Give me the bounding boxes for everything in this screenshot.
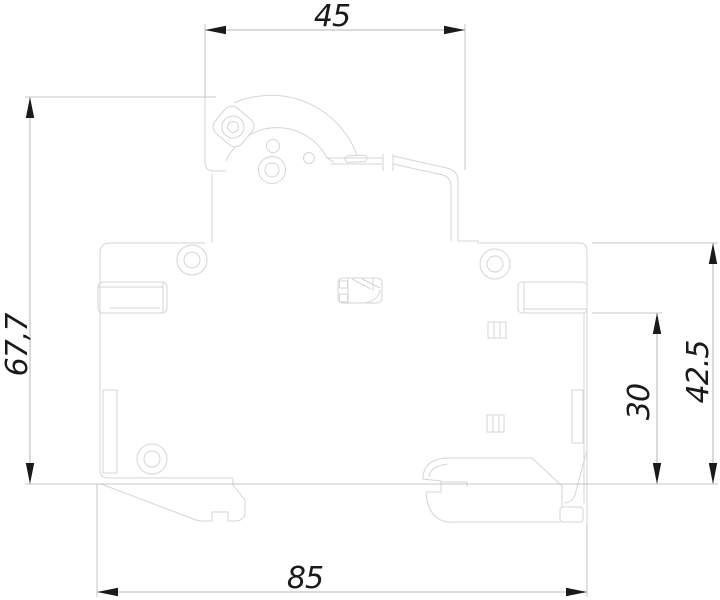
rivet-top-right-inner <box>487 256 503 272</box>
arrow-down-icon <box>709 463 717 484</box>
housing-top-tab <box>345 155 367 163</box>
vent-upper-lines <box>494 322 500 338</box>
arrow-right-icon <box>444 26 465 34</box>
arrow-down-icon <box>26 463 34 484</box>
dim-label-bottom-width: 85 <box>287 561 323 596</box>
arrow-up-icon <box>26 97 34 118</box>
din-fixed-jaw <box>101 479 245 521</box>
pivot-rivet-inner <box>265 163 279 177</box>
slot-left <box>103 390 117 473</box>
drawing-canvas: 45 67,7 42.5 30 85 <box>0 0 720 600</box>
terminal-right-block <box>518 282 587 313</box>
dim-label-right-inner-height: 30 <box>622 384 657 420</box>
din-clip-cap-inner <box>429 464 448 477</box>
body-top-step <box>458 241 478 243</box>
din-rail-mount <box>101 447 587 524</box>
dimension-right-height: 42.5 <box>592 243 718 484</box>
lever-link-pin <box>267 140 280 153</box>
din-clip-slot <box>441 482 467 487</box>
dimension-bottom-width: 85 <box>97 484 587 597</box>
latch-detail-diag-b <box>352 279 371 289</box>
latch-detail-frame <box>338 278 382 303</box>
vent-upper <box>488 322 506 338</box>
vent-lower-lines <box>493 415 499 432</box>
din-clip-cap <box>423 458 450 522</box>
arrow-up-icon <box>709 243 717 264</box>
slot-right <box>572 390 583 443</box>
dim-label-top-width: 45 <box>314 0 350 34</box>
toggle-lever <box>209 95 357 183</box>
vents-and-slots <box>103 322 583 473</box>
breaker-dimension-drawing: 45 67,7 42.5 30 85 <box>0 0 720 600</box>
housing-top-slope-outer <box>393 156 458 241</box>
arrow-right-icon <box>566 588 587 596</box>
dimension-top-width: 45 <box>205 0 465 170</box>
arrow-left-icon <box>205 26 226 34</box>
breaker-body <box>98 95 587 524</box>
dim-label-left-height: 67,7 <box>0 313 35 377</box>
rivet-top-left-inner <box>184 252 200 268</box>
latch-detail-diag-a <box>362 279 380 288</box>
center-latch-detail <box>338 278 382 303</box>
housing-top-slope-inner <box>393 164 451 241</box>
latch-pin <box>304 153 315 164</box>
dim-label-right-height: 42.5 <box>681 341 716 404</box>
terminal-left <box>98 282 167 313</box>
dimension-right-inner-height: 30 <box>592 313 662 484</box>
vent-lower <box>487 415 504 432</box>
latch-detail-pad-top <box>340 281 348 288</box>
arrow-down-icon <box>653 463 661 484</box>
rivet-bottom-left-inner <box>144 451 160 467</box>
arrow-up-icon <box>653 313 661 334</box>
latch-detail-cam-arc <box>365 290 380 303</box>
toggle-knob-hub <box>228 122 239 133</box>
arrow-left-icon <box>97 588 118 596</box>
housing-rivets <box>137 245 510 474</box>
terminal-right <box>518 282 587 313</box>
din-clip-foot <box>560 507 583 522</box>
latch-detail-pad-bottom <box>340 294 348 302</box>
